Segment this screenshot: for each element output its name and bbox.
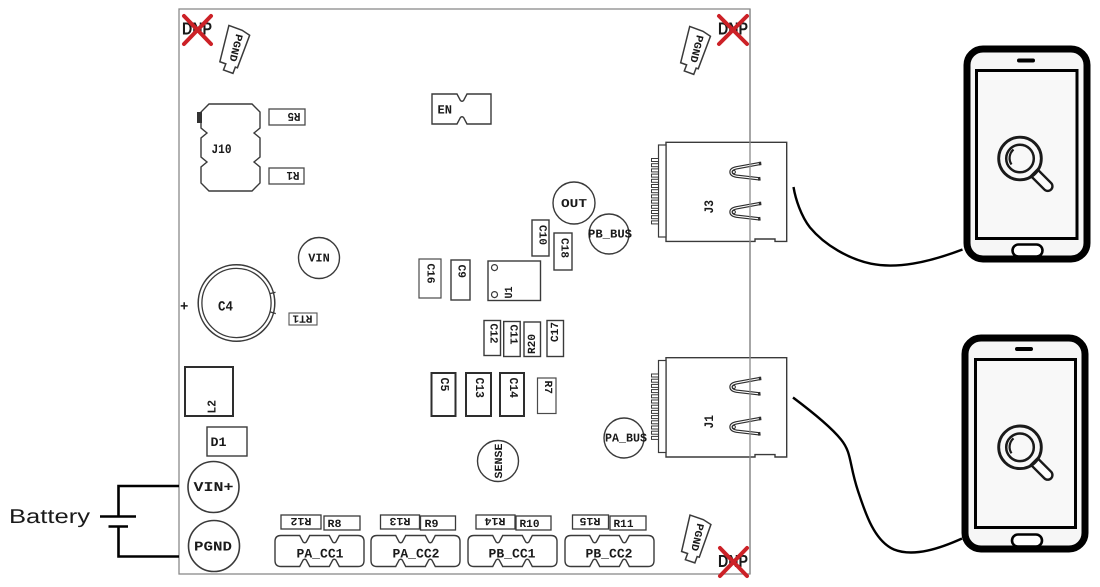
svg-text:R15: R15 — [579, 514, 600, 526]
svg-text:SENSE: SENSE — [494, 443, 506, 478]
svg-text:J10: J10 — [212, 142, 232, 157]
svg-text:C14: C14 — [506, 378, 520, 399]
svg-text:C11: C11 — [507, 325, 519, 345]
svg-text:C17: C17 — [550, 322, 562, 342]
svg-text:C4: C4 — [218, 300, 233, 316]
svg-text:PA_CC1: PA_CC1 — [297, 547, 344, 562]
svg-text:R8: R8 — [328, 519, 342, 531]
svg-text:R12: R12 — [291, 514, 312, 526]
svg-text:PA_CC2: PA_CC2 — [393, 547, 440, 562]
svg-text:J1: J1 — [702, 415, 717, 429]
svg-text:PA_BUS: PA_BUS — [605, 432, 647, 446]
svg-text:OUT: OUT — [561, 197, 587, 211]
svg-text:C9: C9 — [455, 265, 467, 279]
svg-text:R1: R1 — [287, 168, 300, 182]
svg-text:C16: C16 — [424, 264, 436, 284]
svg-text:Battery: Battery — [9, 506, 90, 528]
svg-text:PGND: PGND — [194, 541, 232, 556]
svg-text:+: + — [180, 300, 188, 316]
svg-text:VIN+: VIN+ — [194, 481, 234, 496]
svg-text:PB_BUS: PB_BUS — [588, 228, 632, 242]
svg-text:R14: R14 — [484, 514, 505, 526]
svg-text:C12: C12 — [487, 324, 499, 344]
svg-text:R11: R11 — [614, 519, 634, 531]
svg-text:R10: R10 — [520, 519, 540, 531]
svg-text:U1: U1 — [504, 286, 516, 298]
svg-text:C10: C10 — [536, 225, 548, 245]
svg-text:J3: J3 — [702, 200, 717, 214]
svg-text:R9: R9 — [425, 519, 439, 531]
svg-text:R20: R20 — [527, 334, 539, 354]
svg-text:PB_CC2: PB_CC2 — [586, 547, 633, 562]
svg-text:D1: D1 — [211, 435, 227, 450]
svg-text:R7: R7 — [541, 381, 553, 395]
svg-text:PB_CC1: PB_CC1 — [489, 547, 536, 562]
svg-text:R5: R5 — [288, 109, 301, 123]
svg-text:RT1: RT1 — [292, 311, 312, 323]
svg-text:C5: C5 — [437, 378, 451, 392]
svg-text:C18: C18 — [558, 238, 570, 258]
svg-text:C13: C13 — [472, 378, 486, 399]
svg-text:R13: R13 — [389, 514, 410, 526]
svg-text:L2: L2 — [206, 400, 220, 414]
svg-text:EN: EN — [438, 104, 453, 118]
svg-text:VIN: VIN — [308, 252, 330, 266]
